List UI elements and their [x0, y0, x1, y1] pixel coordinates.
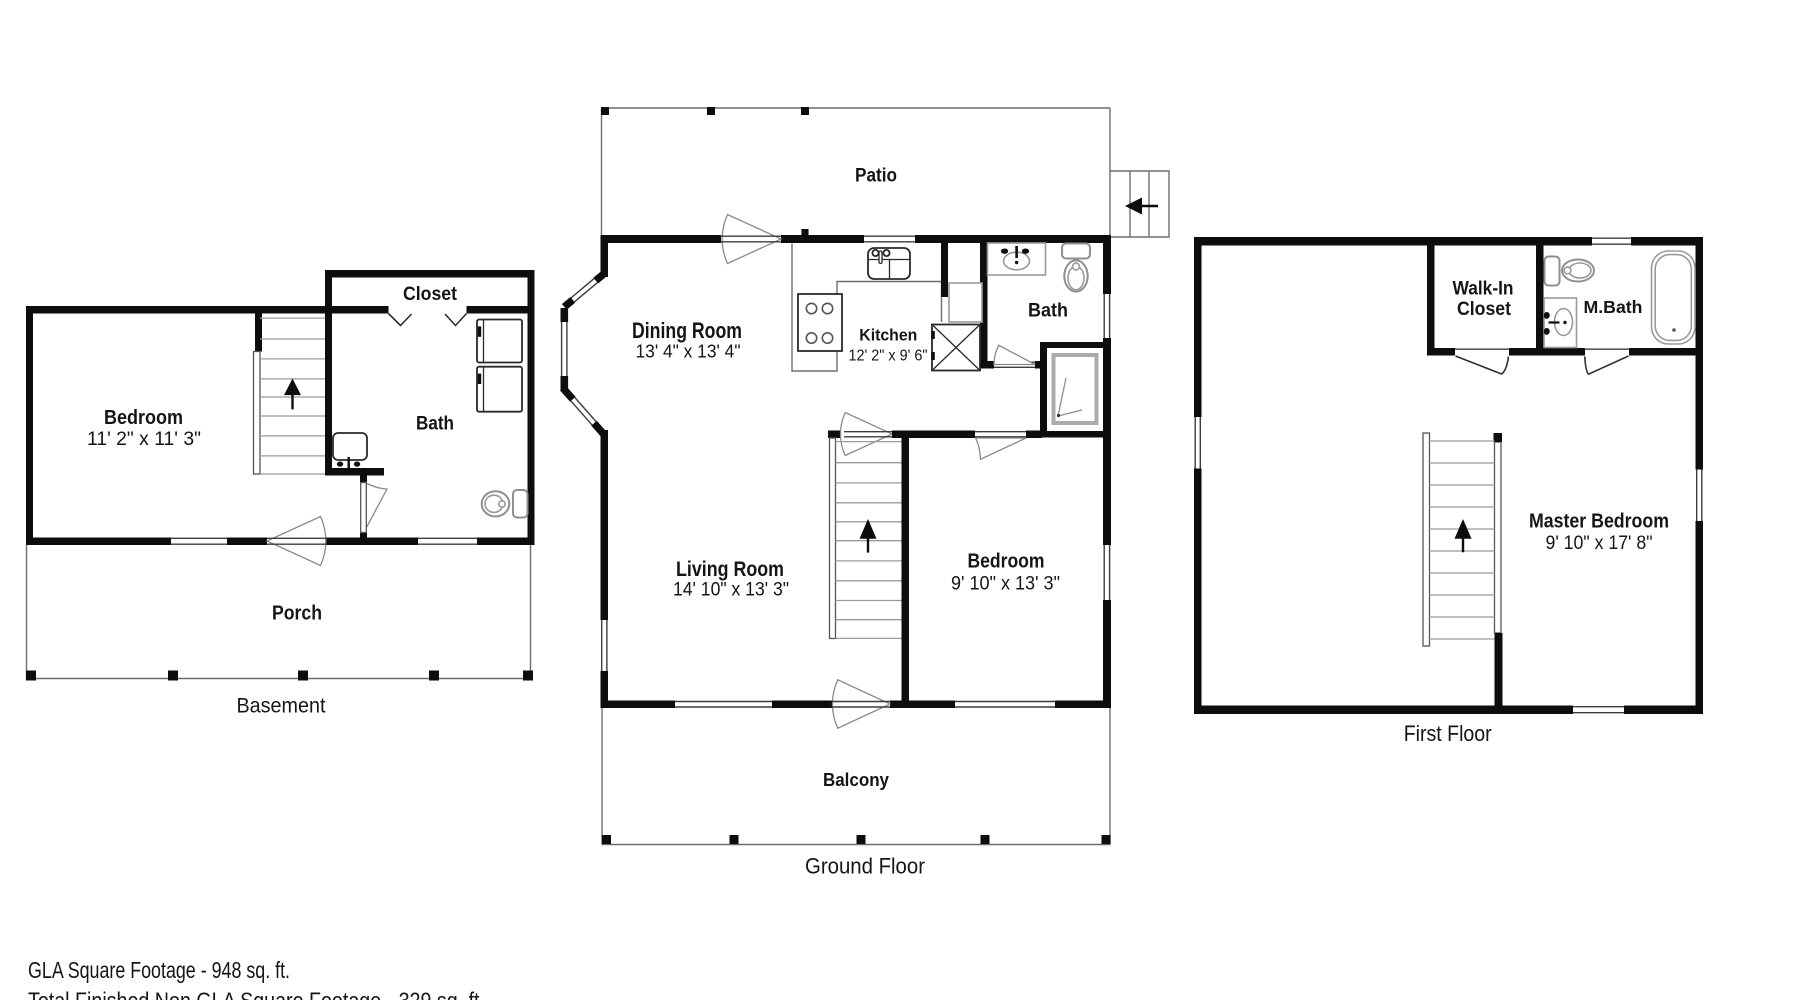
svg-text:9' 10" x 17' 8": 9' 10" x 17' 8" [1546, 533, 1653, 554]
svg-text:13' 4" x 13' 4": 13' 4" x 13' 4" [636, 341, 741, 362]
svg-text:Bedroom: Bedroom [104, 407, 183, 429]
svg-text:Bedroom: Bedroom [968, 551, 1045, 573]
svg-text:M.Bath: M.Bath [1584, 297, 1643, 317]
svg-text:Dining Room: Dining Room [632, 318, 742, 343]
svg-text:Ground Floor: Ground Floor [805, 854, 925, 879]
svg-text:First Floor: First Floor [1404, 721, 1492, 746]
svg-text:Patio: Patio [855, 165, 897, 186]
svg-text:Porch: Porch [272, 603, 322, 625]
svg-text:Living Room: Living Room [676, 558, 784, 581]
svg-text:Total Finished Non GLA Square: Total Finished Non GLA Square Footage - … [28, 988, 485, 1000]
svg-text:GLA Square Footage - 948 sq. f: GLA Square Footage - 948 sq. ft. [28, 957, 290, 983]
svg-text:9' 10" x 13' 3": 9' 10" x 13' 3" [951, 574, 1060, 595]
svg-text:Basement: Basement [237, 695, 326, 718]
svg-text:Walk-In: Walk-In [1453, 279, 1514, 300]
svg-text:11' 2" x 11' 3": 11' 2" x 11' 3" [87, 428, 201, 450]
svg-text:Master Bedroom: Master Bedroom [1529, 511, 1669, 533]
svg-text:12' 2" x 9' 6": 12' 2" x 9' 6" [849, 348, 928, 365]
svg-text:Closet: Closet [1457, 299, 1512, 320]
svg-text:Bath: Bath [416, 414, 454, 435]
svg-text:Closet: Closet [403, 284, 458, 305]
svg-text:Balcony: Balcony [823, 770, 889, 790]
svg-text:14' 10" x 13' 3": 14' 10" x 13' 3" [673, 580, 789, 601]
svg-text:Bath: Bath [1028, 301, 1068, 322]
svg-text:Kitchen: Kitchen [859, 326, 917, 345]
